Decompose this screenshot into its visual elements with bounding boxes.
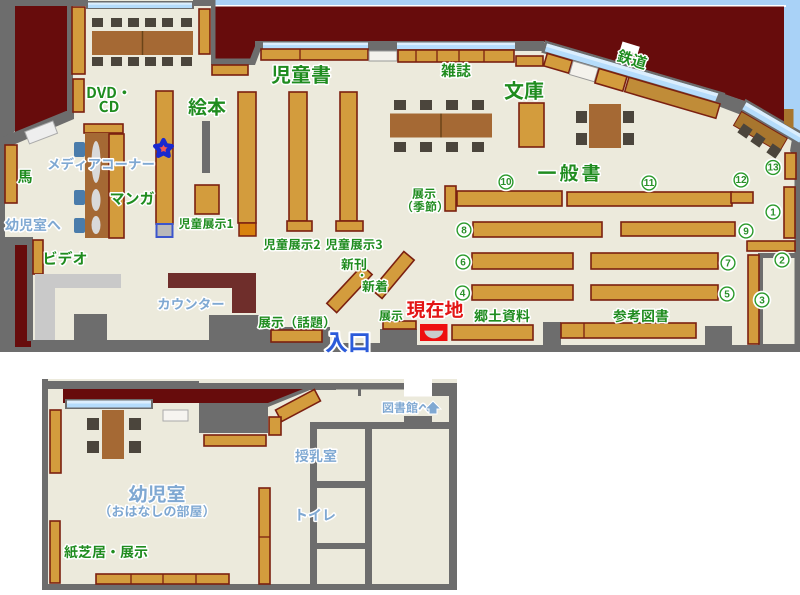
- svg-text:4: 4: [460, 289, 466, 300]
- svg-text:7: 7: [725, 259, 731, 270]
- svg-text:10: 10: [500, 177, 512, 188]
- svg-text:12: 12: [735, 175, 747, 186]
- svg-text:3: 3: [759, 296, 765, 307]
- svg-text:2: 2: [779, 256, 785, 267]
- svg-text:1: 1: [770, 208, 776, 219]
- svg-text:9: 9: [743, 227, 749, 238]
- svg-text:6: 6: [460, 258, 466, 269]
- svg-text:8: 8: [461, 226, 467, 237]
- svg-text:13: 13: [767, 163, 779, 174]
- svg-text:5: 5: [724, 290, 730, 301]
- svg-text:11: 11: [644, 178, 655, 189]
